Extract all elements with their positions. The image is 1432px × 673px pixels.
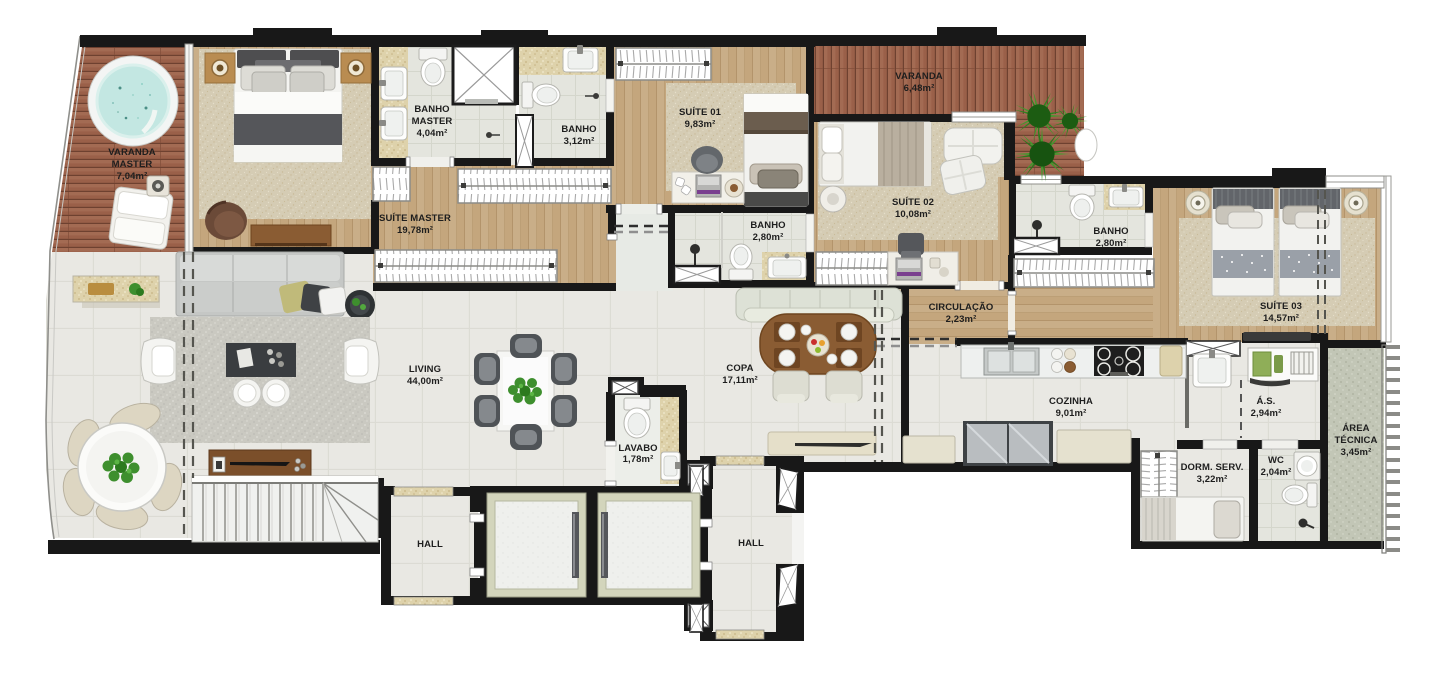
svg-text:BANHO: BANHO [561, 124, 596, 135]
svg-text:17,11m²: 17,11m² [722, 375, 758, 386]
svg-text:7,04m²: 7,04m² [117, 171, 148, 182]
svg-text:BANHO: BANHO [750, 220, 785, 231]
svg-text:MASTER: MASTER [412, 116, 453, 127]
svg-text:10,08m²: 10,08m² [895, 209, 931, 220]
svg-text:14,57m²: 14,57m² [1263, 313, 1299, 324]
svg-text:1,78m²: 1,78m² [623, 454, 654, 465]
svg-text:19,78m²: 19,78m² [397, 225, 433, 236]
svg-text:2,04m²: 2,04m² [1261, 467, 1292, 478]
svg-text:2,23m²: 2,23m² [946, 314, 977, 325]
svg-text:TÉCNICA: TÉCNICA [1335, 435, 1378, 446]
svg-text:6,48m²: 6,48m² [904, 83, 935, 94]
svg-text:SUÍTE 01: SUÍTE 01 [679, 107, 722, 118]
svg-text:SUÍTE MASTER: SUÍTE MASTER [379, 213, 451, 224]
svg-text:VARANDA: VARANDA [108, 147, 156, 158]
svg-text:LAVABO: LAVABO [618, 443, 657, 454]
svg-text:MASTER: MASTER [112, 159, 153, 170]
svg-text:COZINHA: COZINHA [1049, 396, 1093, 407]
svg-text:DORM. SERV.: DORM. SERV. [1181, 462, 1244, 473]
svg-text:3,45m²: 3,45m² [1341, 447, 1372, 458]
svg-text:9,01m²: 9,01m² [1056, 408, 1087, 419]
svg-text:2,80m²: 2,80m² [1096, 238, 1127, 249]
svg-text:3,12m²: 3,12m² [564, 136, 595, 147]
svg-text:HALL: HALL [417, 539, 443, 550]
svg-text:WC: WC [1268, 455, 1284, 466]
svg-text:ÁREA: ÁREA [1342, 423, 1369, 434]
svg-text:SUÍTE 02: SUÍTE 02 [892, 197, 934, 208]
svg-text:2,80m²: 2,80m² [753, 232, 784, 243]
svg-text:9,83m²: 9,83m² [685, 119, 716, 130]
svg-text:44,00m²: 44,00m² [407, 376, 443, 387]
svg-text:Á.S.: Á.S. [1257, 396, 1276, 407]
svg-text:HALL: HALL [738, 538, 764, 549]
svg-text:VARANDA: VARANDA [895, 71, 943, 82]
svg-text:3,22m²: 3,22m² [1197, 474, 1228, 485]
svg-text:CIRCULAÇÃO: CIRCULAÇÃO [929, 302, 994, 313]
svg-text:BANHO: BANHO [1093, 226, 1128, 237]
svg-text:SUÍTE 03: SUÍTE 03 [1260, 301, 1302, 312]
svg-text:4,04m²: 4,04m² [417, 128, 448, 139]
svg-text:BANHO: BANHO [414, 104, 449, 115]
svg-text:LIVING: LIVING [409, 364, 441, 375]
svg-text:2,94m²: 2,94m² [1251, 408, 1282, 419]
svg-text:COPA: COPA [726, 363, 753, 374]
